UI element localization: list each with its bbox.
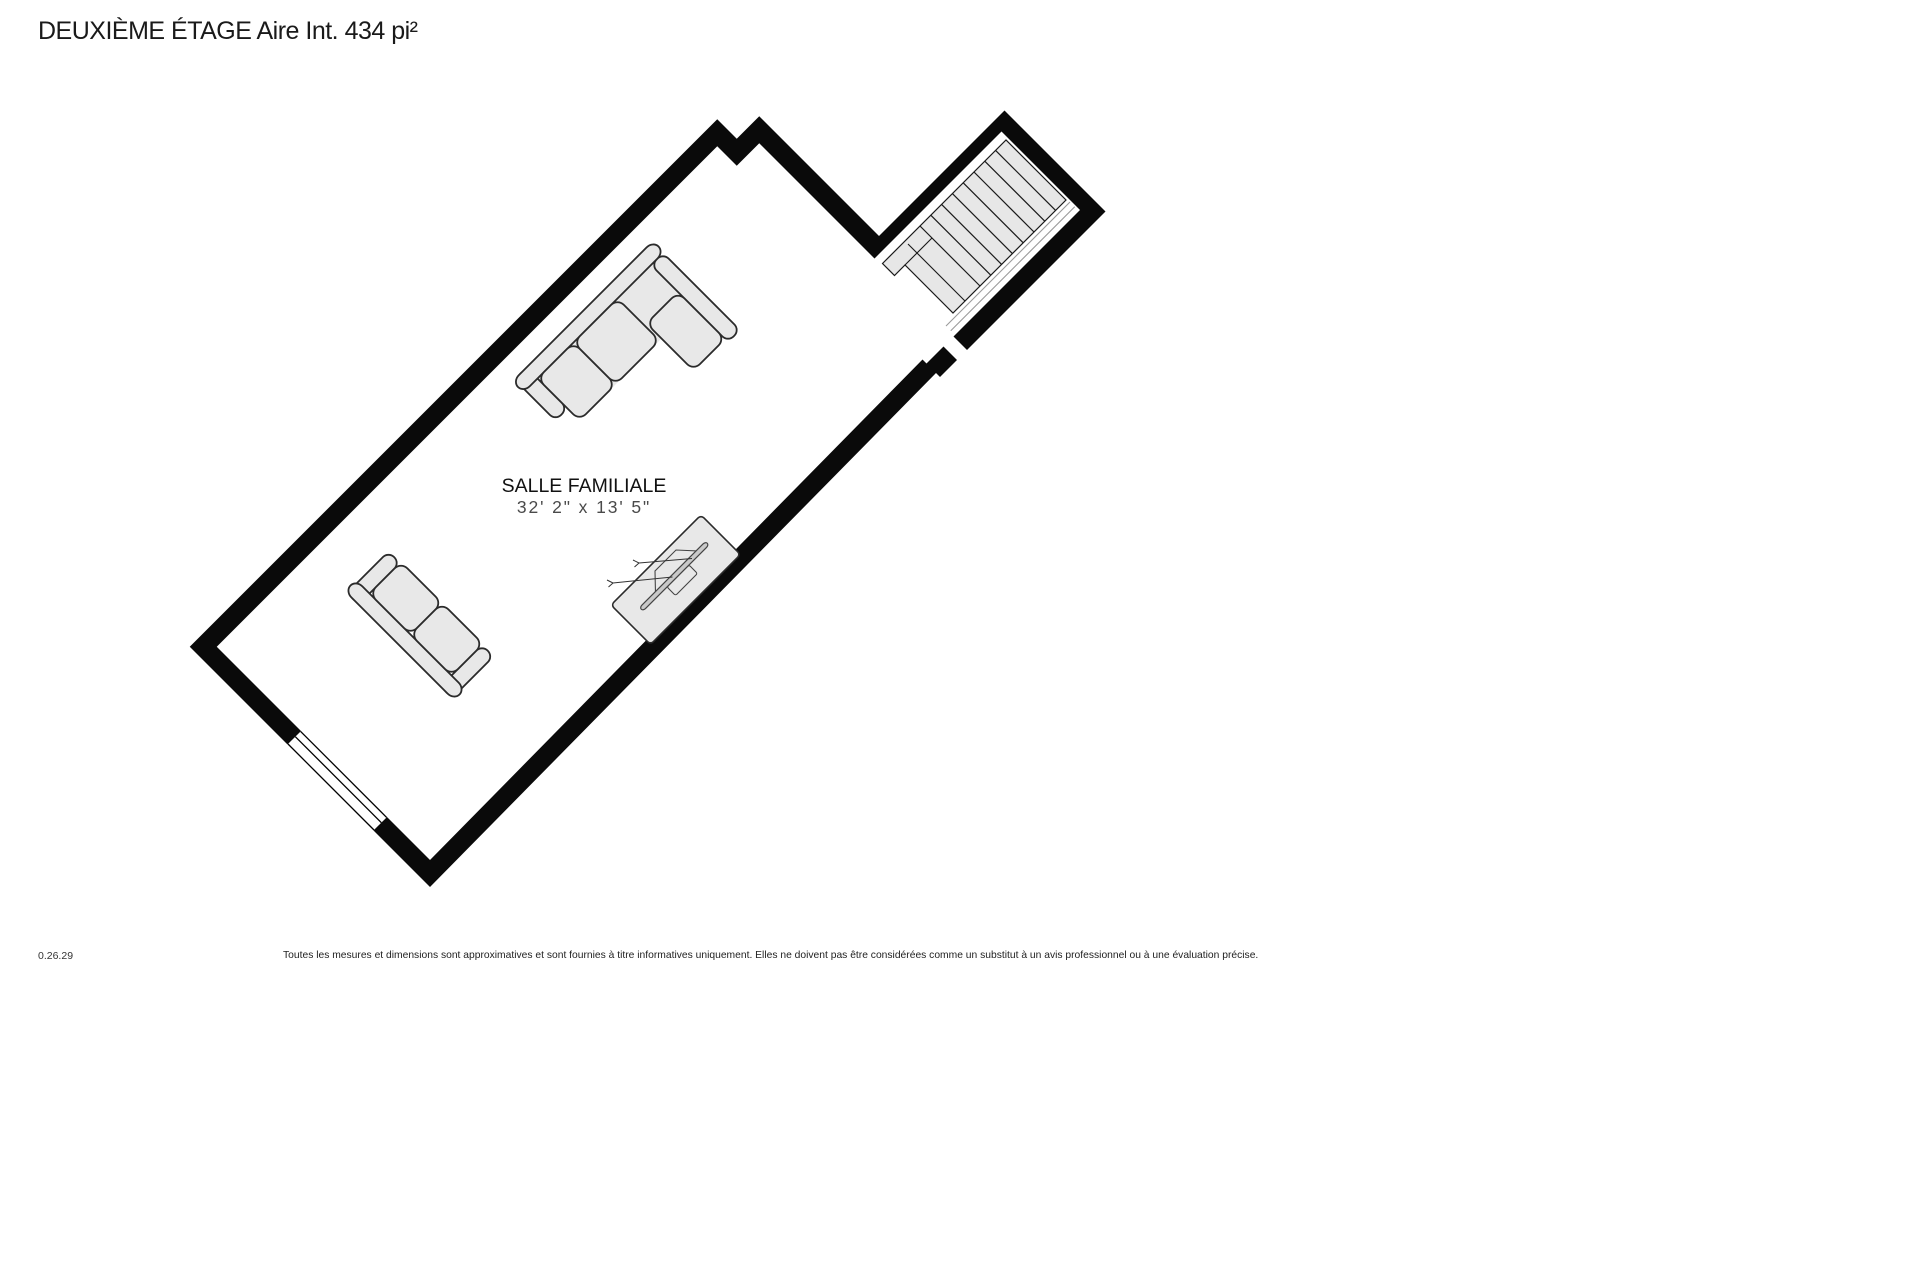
svg-text:SALLE FAMILIALE: SALLE FAMILIALE — [502, 475, 667, 497]
svg-text:32' 2" x 13' 5": 32' 2" x 13' 5" — [517, 497, 651, 517]
